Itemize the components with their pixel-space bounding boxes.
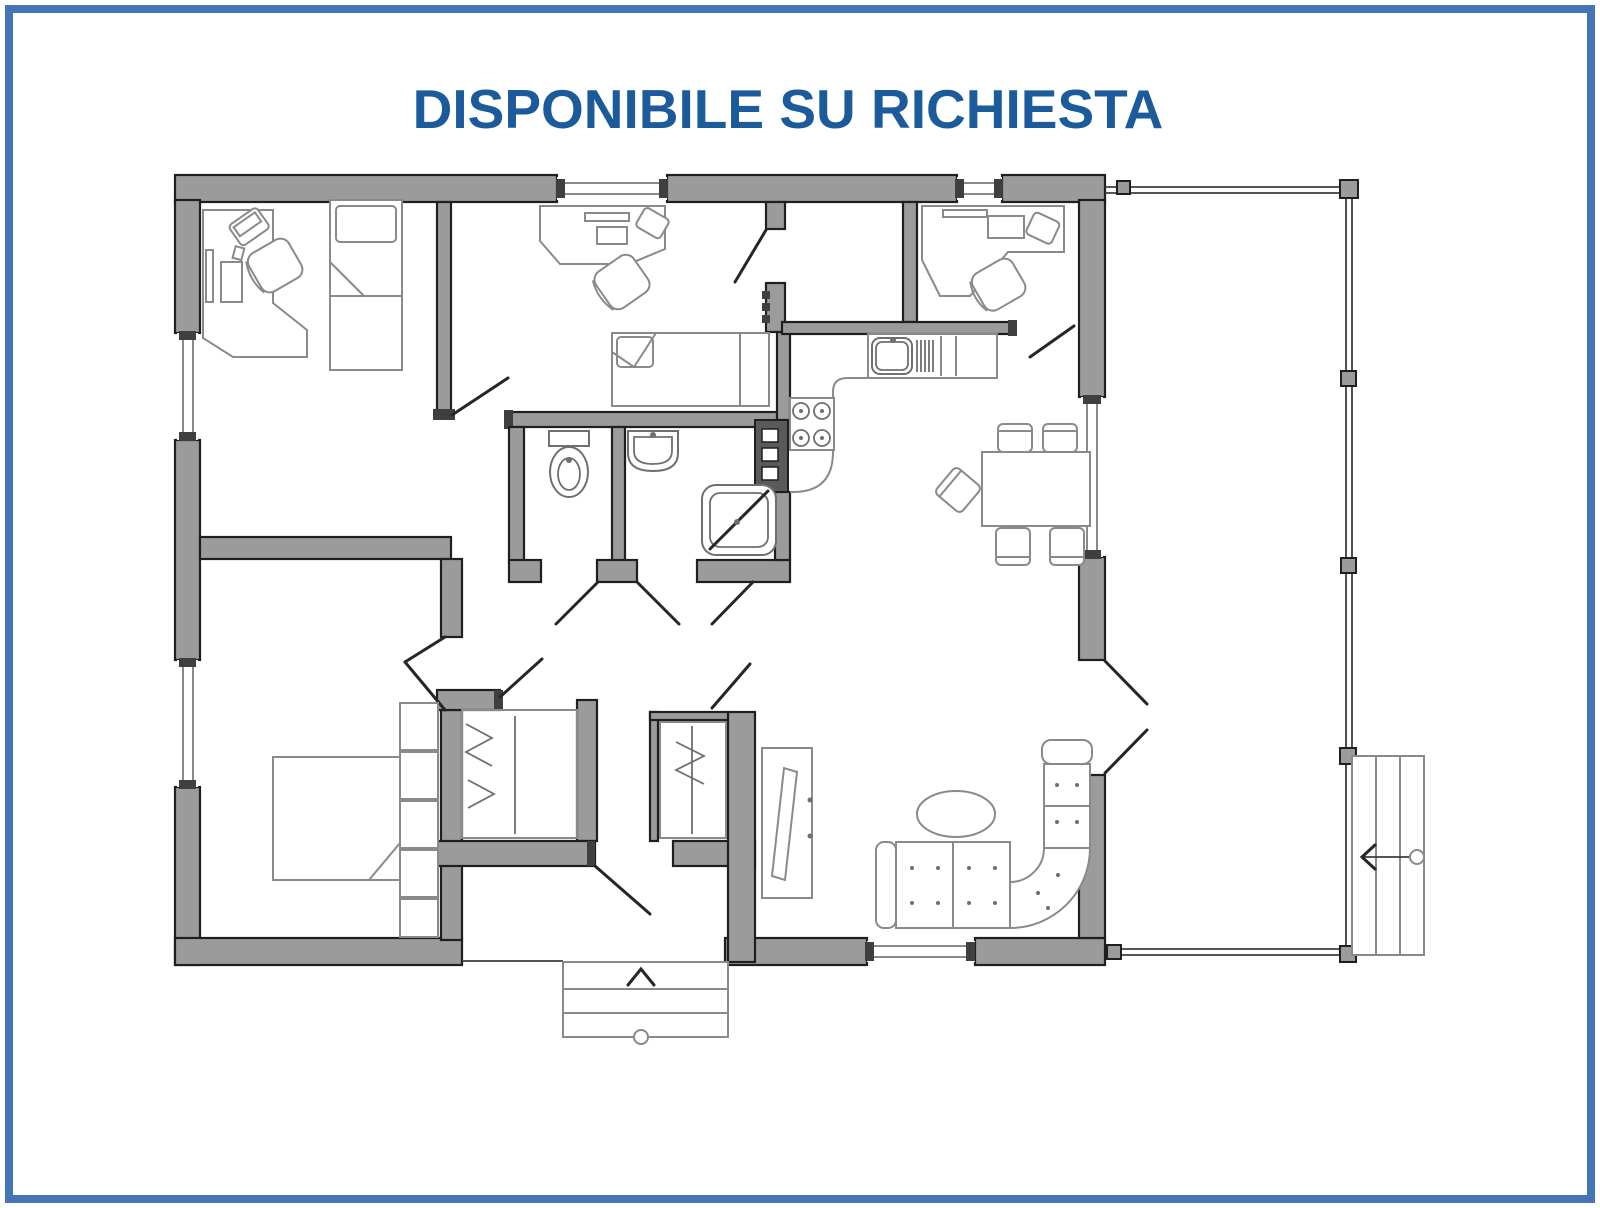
door-leaf: [637, 582, 679, 624]
toilet-icon: [549, 431, 589, 497]
mouse-icon: [233, 246, 245, 260]
chair-icon: [996, 528, 1030, 565]
sofa-icon: [876, 740, 1092, 928]
door-leaf: [556, 582, 598, 624]
appliance-column: [755, 420, 788, 492]
terrace-railing: [1105, 180, 1358, 962]
stove-icon: [790, 398, 834, 450]
living-room-furniture: [762, 740, 1092, 928]
closet: [462, 710, 577, 838]
hanging-clothes-icon: [676, 742, 704, 784]
keyboard-icon: [597, 227, 627, 244]
door-leaf: [735, 230, 766, 282]
floor-plan-image: DISPONIBILE SU RICHIESTA: [0, 0, 1600, 1208]
steps-start-marker: [1410, 850, 1424, 864]
keyboard-icon: [221, 262, 242, 302]
door-leaf: [712, 582, 753, 624]
monitor-icon: [585, 213, 629, 221]
closet: [660, 722, 726, 838]
terrace-door-leaf: [1105, 730, 1147, 773]
wardrobe-icon: [400, 703, 438, 937]
dining-table-icon: [982, 452, 1090, 526]
study-furniture: [922, 206, 1064, 316]
window: [177, 658, 198, 789]
bedroom-topleft-furniture: [203, 200, 402, 370]
master-bedroom-furniture: [273, 703, 438, 937]
single-bed-icon: [612, 333, 769, 406]
single-bed-icon: [330, 200, 402, 370]
kitchen: [790, 334, 997, 492]
chair-icon: [1050, 528, 1084, 565]
window: [177, 331, 198, 441]
pencil-tray-icon: [943, 210, 987, 217]
keyboard-icon: [988, 216, 1024, 238]
chair-icon: [934, 466, 982, 514]
kitchen-sink-icon: [872, 337, 912, 374]
bedroom-topmiddle-furniture: [540, 206, 769, 406]
window: [865, 941, 975, 962]
double-bed-icon: [273, 757, 400, 880]
door-leaf: [712, 664, 750, 708]
page-title: DISPONIBILE SU RICHIESTA: [413, 78, 1164, 140]
dining-area: [934, 424, 1090, 565]
railing-post: [1107, 945, 1121, 959]
door-leaf: [452, 378, 508, 415]
hanging-clothes-icon: [466, 724, 494, 808]
door-leaf: [500, 659, 542, 697]
chair-icon: [998, 424, 1032, 452]
railing-post: [1341, 371, 1356, 386]
terrace-steps: [1352, 756, 1424, 955]
monitor-icon: [206, 250, 213, 302]
tv-stand-icon: [762, 748, 813, 898]
entry-door-leaf: [595, 866, 650, 914]
page: DISPONIBILE SU RICHIESTA: [0, 0, 1600, 1208]
shower-icon: [702, 485, 776, 555]
coffee-table-icon: [917, 791, 995, 837]
door-leaf: [405, 637, 445, 662]
steps-start-marker: [634, 1030, 648, 1044]
railing-post: [1340, 180, 1358, 198]
washbasin-icon: [628, 431, 678, 471]
railing-post: [1117, 181, 1130, 194]
terrace: [1105, 180, 1424, 962]
door-leaf: [1030, 326, 1074, 357]
railing-post: [1341, 558, 1356, 573]
entry-steps: [462, 961, 728, 1044]
terrace-door-leaf: [1105, 661, 1147, 704]
window: [556, 177, 668, 200]
chair-icon: [1043, 424, 1077, 452]
window: [955, 177, 1003, 200]
bathroom: [549, 431, 776, 555]
